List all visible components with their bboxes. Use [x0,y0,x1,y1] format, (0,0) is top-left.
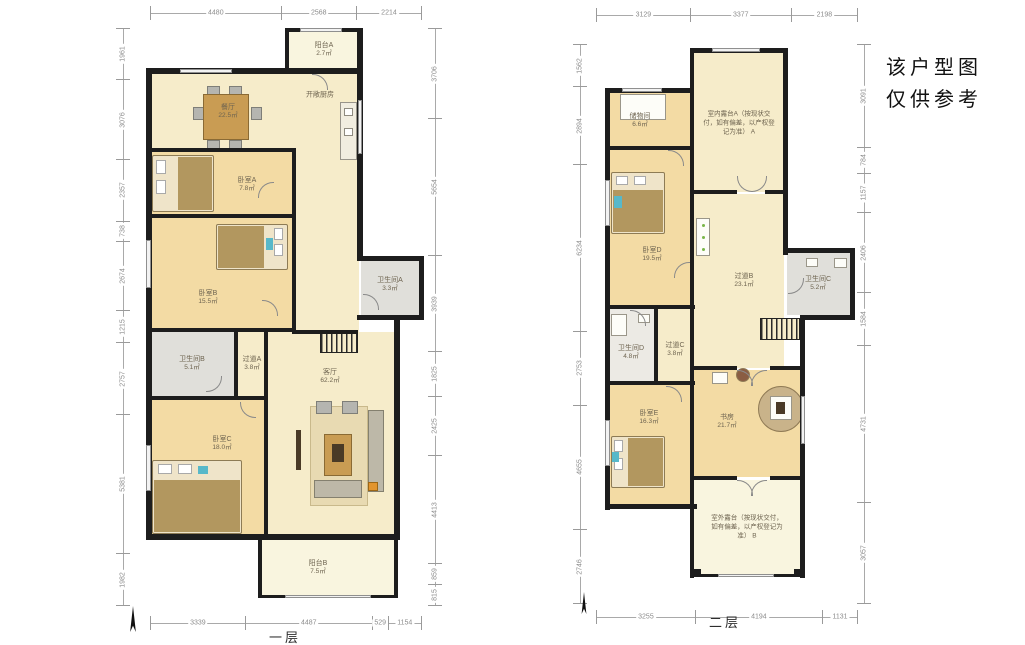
dim-seg: 2406 [857,212,871,292]
wall [146,68,363,74]
room-label-balcony-a: 阳台A2.7㎡ [315,41,334,59]
dim-seg: 3255 [596,610,695,624]
room-label-storage: 储物间6.6㎡ [630,112,651,130]
toilet-icon [834,258,847,268]
dim-seg: 2357 [116,159,130,220]
wall [605,305,695,309]
wall [234,330,238,400]
armchair-icon [316,401,332,414]
floorplan-page: 该户型图 仅供参考 [0,0,1025,645]
wall [419,256,424,320]
dim-seg: 2425 [428,396,442,455]
disclaimer-line2: 仅供参考 [886,84,982,116]
room-label-bath-a: 卫生间A3.3㎡ [377,276,403,294]
dim-seg: 1961 [116,28,130,79]
wall [292,330,358,334]
dim-seg: 2746 [573,529,587,604]
pillow-icon [178,464,192,474]
room-label-bedroom-d: 卧室D19.5㎡ [642,246,661,264]
room-label-dining: 餐厅22.5㎡ [218,103,237,121]
dim-seg: 1157 [857,173,871,212]
room-label-terrace-b: 室外露台（按现状交付，如有偏差，以产权登记为准） B [710,513,784,540]
dim-seg: 2757 [116,342,130,414]
stairs-icon [760,318,800,340]
room-label-hall-c: 过道C3.8㎡ [665,341,684,359]
dim-seg: 784 [857,147,871,174]
window [718,574,774,577]
room-label-living: 客厅62.2㎡ [320,368,339,386]
stairs-icon [320,333,358,353]
wall [357,256,424,261]
wall [783,48,788,255]
window [180,69,232,73]
chair-icon [251,107,262,120]
wall [605,504,697,509]
window [285,595,371,598]
dim-row-top: 4480 2568 2214 [150,6,422,20]
dim-seg: 815 [428,584,442,606]
window [622,88,662,92]
wardrobe-dot-icon [702,236,705,239]
room-label-bedroom-b: 卧室B15.5㎡ [198,289,217,307]
dim-seg: 6234 [573,164,587,330]
window [801,396,805,444]
room-label-bedroom-c: 卧室C18.0㎡ [212,435,231,453]
stove-icon [344,128,353,136]
floor2-caption: 二层 [709,612,741,631]
blanket-icon [218,226,264,268]
wardrobe-icon [696,218,710,256]
wall [783,248,855,253]
wall [654,309,658,385]
wall [357,315,424,320]
sink-icon [344,108,353,116]
room-open-area [294,152,359,334]
dim-seg: 3129 [596,8,690,22]
wall [262,534,400,540]
table-decor-icon [332,444,344,462]
wall [800,476,805,578]
room-balcony-b [262,538,394,595]
wall [394,315,400,540]
pillow-icon [158,464,172,474]
dim-seg: 4655 [573,405,587,530]
dim-seg: 1131 [822,610,858,624]
pillow-icon [274,228,283,240]
dim-col-right: 3091 784 1157 2406 1584 4731 3057 [857,44,871,604]
wall [146,328,296,332]
wall [770,476,804,480]
wall [690,305,694,387]
dim-seg: 3706 [428,28,442,118]
dim-seg: 1825 [428,351,442,396]
tv-icon [296,430,301,470]
dim-seg: 1982 [116,553,130,606]
dim-seg: 2674 [116,241,130,311]
dim-seg: 3339 [150,616,245,630]
dim-seg: 529 [372,616,388,630]
room-label-study: 书房21.7㎡ [717,413,736,431]
bed-runner-icon [614,196,622,208]
blanket-icon [628,438,663,486]
pillow-icon [616,176,628,185]
wall [264,330,268,400]
wall [690,476,694,578]
room-label-bath-d: 卫生间D4.8㎡ [618,344,644,362]
wall [694,476,737,480]
dim-seg: 4487 [245,616,372,630]
room-label-hall-b: 过道B23.1㎡ [734,272,753,290]
window [712,48,760,52]
pillow-icon [634,176,646,185]
dim-seg: 1215 [116,310,130,342]
window [146,240,151,288]
pillow-icon [156,160,166,174]
window [605,420,610,466]
dim-seg: 859 [428,563,442,585]
armchair-icon [342,401,358,414]
wardrobe-dot-icon [702,248,705,251]
room-label-hall-a: 过道A3.8㎡ [243,355,262,373]
wall [765,190,785,194]
pillow-icon [614,440,623,452]
sink-icon [806,258,818,267]
dim-row-top: 3129 3377 2198 [596,8,858,22]
disclaimer-note: 该户型图 仅供参考 [886,52,982,116]
sofa-icon [314,480,362,498]
disclaimer-line1: 该户型图 [886,52,982,84]
window [300,28,342,32]
blanket-icon [154,480,240,532]
bed-runner-icon [612,452,619,462]
room-label-kitchen: 开敞厨房 [306,90,334,99]
stool-icon [368,482,378,491]
shower-icon [611,314,627,336]
wall [264,396,268,538]
dim-seg: 4413 [428,455,442,562]
wall [258,534,262,598]
wall [146,214,296,218]
cabinet-icon [712,372,728,384]
window [358,100,362,154]
dim-seg: 5381 [116,414,130,553]
dim-seg: 2568 [281,6,356,20]
wall [605,381,695,385]
wall [800,315,855,320]
blanket-icon [178,157,212,210]
wall [694,366,737,370]
dim-seg: 1584 [857,292,871,345]
dim-seg: 4480 [150,6,281,20]
wall [357,68,363,260]
dim-seg: 3377 [690,8,791,22]
wall [694,190,737,194]
dim-seg: 3057 [857,502,871,604]
pillow-icon [156,180,166,194]
dim-seg: 1562 [573,44,587,86]
wardrobe-dot-icon [702,224,705,227]
wall [605,146,693,150]
wall [770,366,804,370]
dim-seg: 4731 [857,345,871,501]
floor1-caption: 一层 [269,627,301,645]
window [146,445,151,491]
chair-icon [776,402,785,414]
dim-seg: 2198 [791,8,858,22]
dim-seg: 5654 [428,118,442,255]
north-arrow-icon [127,606,139,632]
terrace-post [694,569,701,576]
dim-seg: 2753 [573,331,587,405]
dim-seg: 2214 [356,6,422,20]
wall [850,248,855,320]
bed-runner-icon [198,466,208,474]
dim-seg: 2894 [573,86,587,164]
dim-col-left: 1562 2894 6234 2753 4655 2746 [573,44,587,604]
dim-seg: 738 [116,221,130,241]
dim-seg: 3939 [428,255,442,351]
wall [292,148,296,332]
room-label-balcony-b: 阳台B7.5㎡ [309,559,328,577]
dim-col-right: 3706 5654 3939 1825 2425 4413 859 815 [428,28,442,606]
wall [394,534,398,598]
sofa-icon [368,410,384,492]
room-label-terrace-a: 室内露台A（按现状交付，如有偏差，以产权登记为准） A [702,109,776,136]
room-label-bath-b: 卫生间B5.1㎡ [179,355,205,373]
dim-seg: 3091 [857,44,871,147]
wall [146,148,296,152]
room-label-bedroom-e: 卧室E16.3㎡ [639,409,658,427]
wall [146,534,266,540]
window [605,180,610,226]
dim-seg: 3076 [116,79,130,159]
room-label-bedroom-a: 卧室A7.8㎡ [238,176,257,194]
room-label-bath-c: 卫生间C5.2㎡ [805,275,831,293]
pillow-icon [274,244,283,256]
terrace-post [794,569,801,576]
dim-col-left: 1961 3076 2357 738 2674 1215 2757 5381 1… [116,28,130,606]
dim-seg: 1154 [388,616,422,630]
bed-runner-icon [266,238,273,250]
wall [146,396,268,400]
